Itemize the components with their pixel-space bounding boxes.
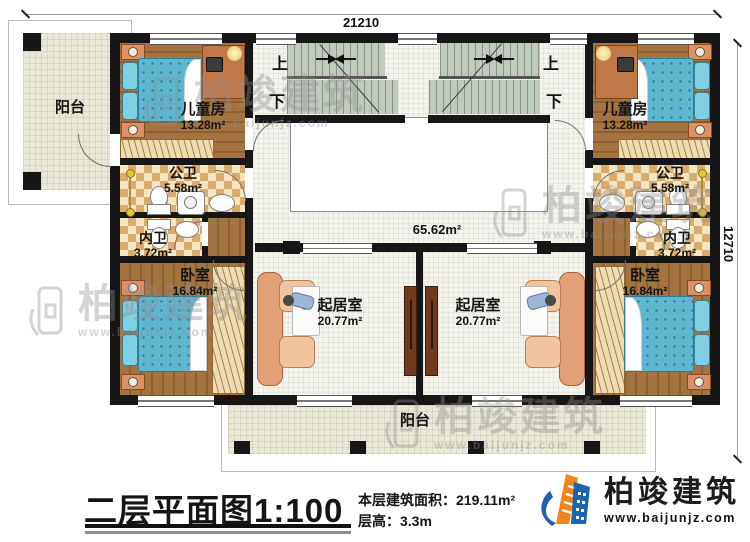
sink-symbol: [209, 194, 235, 212]
nightstand: [687, 374, 711, 390]
sofa: [559, 272, 585, 386]
nightstand: [121, 374, 145, 390]
floor-height-label: 层高：: [358, 513, 400, 529]
shower-head-icon: [184, 196, 197, 209]
column: [350, 441, 366, 454]
bed-pillow: [122, 92, 138, 120]
closet-kids-right: [618, 139, 712, 159]
towel-hook-icon: [126, 208, 135, 217]
label-pub-bath-left: 公卫 5.58m²: [150, 166, 216, 195]
computer-monitor: [206, 57, 223, 72]
bed-pillow: [694, 334, 710, 366]
cabinet-door-left: [404, 286, 417, 376]
lamp-icon: [596, 46, 611, 61]
bed-pillow: [694, 300, 710, 332]
stair-direction-arrow-icon: [474, 52, 514, 66]
watermark-logo-icon: [490, 185, 534, 243]
window: [550, 33, 587, 45]
watermark-logo-icon: [26, 283, 70, 341]
lamp-icon: [227, 46, 242, 61]
dimension-right-value: 12710: [721, 226, 736, 262]
stair-direction-arrow-icon: [316, 52, 356, 66]
column: [23, 172, 41, 190]
computer-monitor: [617, 57, 634, 72]
nightstand: [687, 280, 711, 296]
wall-outer-left: [110, 33, 120, 405]
label-bedroom-left: 卧室 16.84m²: [152, 268, 238, 298]
floor-plan: 柏竣建筑 www.baijunjz.com 柏竣建筑 www.baijunjz.…: [0, 0, 750, 542]
label-bedroom-right: 卧室 16.84m²: [602, 268, 688, 298]
stair-up-label-right: 上: [543, 50, 559, 74]
window: [138, 395, 214, 407]
cabinet-door-right: [425, 286, 438, 376]
wall-closet-right: [589, 158, 710, 165]
door-gap-balcony-top: [110, 134, 120, 166]
floor-height-value: 3.3m: [400, 513, 432, 529]
label-balcony-bottom: 阳台: [385, 412, 445, 430]
column: [23, 33, 41, 51]
sofa-seat: [525, 336, 561, 368]
label-balcony-top: 阳台: [40, 99, 100, 117]
label-pub-bath-right: 公卫 5.58m²: [637, 166, 703, 195]
dimension-line-right: [737, 44, 738, 460]
floor-height-row: 层高：3.3m: [358, 511, 515, 532]
closet-kids-left: [120, 139, 214, 159]
window: [638, 33, 694, 45]
toilet-tank: [147, 204, 171, 215]
floor-stats: 本层建筑面积：219.11m² 层高：3.3m: [358, 490, 515, 532]
watermark-url: www.baijunjz.com: [78, 325, 250, 339]
towel-hook-icon: [126, 169, 135, 178]
bed-blanket: [625, 297, 642, 371]
label-priv-bath-left: 内卫 3.72m²: [122, 231, 184, 260]
floor-area-value: 219.11m²: [456, 492, 515, 508]
brand-logo-icon: [538, 470, 596, 532]
balcony-door-left: [297, 395, 352, 407]
wall-living-divider: [416, 252, 423, 398]
column: [234, 441, 250, 454]
stair-right-railing: [439, 76, 540, 79]
window: [150, 33, 222, 45]
label-priv-bath-right: 内卫 3.72m²: [646, 231, 708, 260]
column: [283, 241, 300, 254]
dimension-top-value: 21210: [340, 15, 382, 30]
label-living-right: 起居室 20.77m²: [438, 298, 518, 328]
towel-bar: [129, 173, 131, 211]
person-head: [283, 295, 294, 306]
label-hall-area: 65.62m²: [402, 221, 472, 239]
corridor-opening-left: [303, 243, 372, 254]
bed-pillow: [122, 62, 138, 90]
wall-closet-left: [116, 158, 245, 165]
watermark-text: 柏竣建筑: [434, 396, 606, 438]
corridor-opening-right: [467, 243, 537, 254]
door-gap-pubbath-left: [245, 168, 253, 198]
stair-down-label-left: 下: [269, 88, 285, 112]
brand-logo: 柏竣建筑 www.baijunjz.com: [538, 470, 740, 532]
bed-pillow: [694, 62, 710, 90]
brand-website: www.baijunjz.com: [604, 511, 740, 525]
title-underline: [85, 524, 351, 528]
sofa-seat: [279, 336, 315, 368]
window: [256, 33, 296, 45]
label-kids-left: 儿童房 13.28m²: [158, 102, 248, 132]
brand-name: 柏竣建筑: [604, 477, 740, 509]
wall-corridor-b: [372, 243, 467, 252]
person-head: [545, 295, 556, 306]
hall-bedroom-left: [208, 218, 245, 260]
window: [398, 33, 437, 45]
wall-below-stair-right: [428, 115, 550, 123]
bed-pillow: [694, 92, 710, 120]
stair-right-lower-flight: [429, 80, 540, 114]
nightstand: [688, 122, 712, 138]
floor-area-row: 本层建筑面积：219.11m²: [358, 490, 515, 511]
stair-up-label-left: 上: [272, 50, 288, 74]
label-living-left: 起居室 20.77m²: [300, 298, 380, 328]
floor-area-label: 本层建筑面积：: [358, 492, 456, 508]
stair-down-label-right: 下: [546, 88, 562, 112]
window: [620, 395, 692, 407]
watermark-url: www.baijunjz.com: [434, 438, 606, 452]
title-underline-shadow: [85, 531, 351, 534]
label-kids-right: 儿童房 13.28m²: [580, 102, 670, 132]
